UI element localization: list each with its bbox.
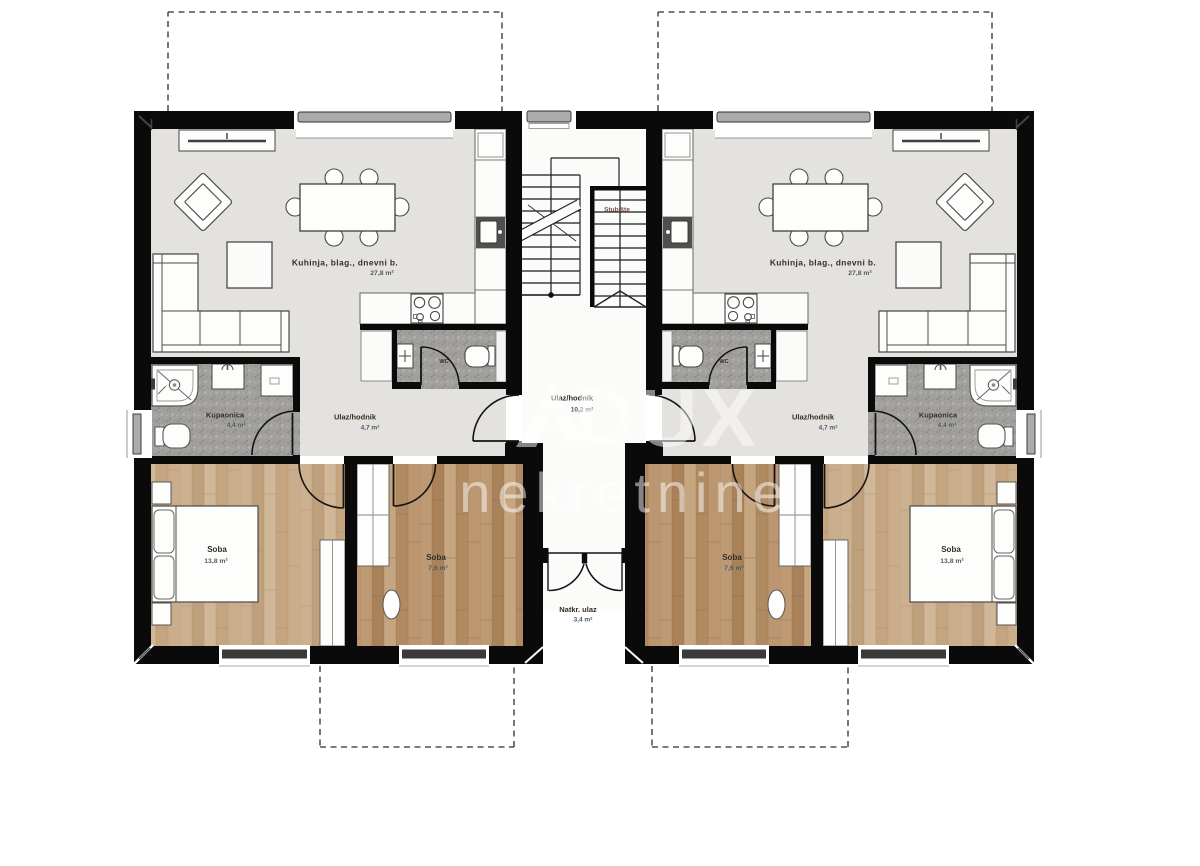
svg-text:Soba: Soba bbox=[426, 553, 446, 562]
svg-text:3,4 m²: 3,4 m² bbox=[574, 617, 594, 624]
svg-text:Ulaz/hodnik: Ulaz/hodnik bbox=[792, 413, 835, 422]
svg-text:7,6 m²: 7,6 m² bbox=[428, 565, 448, 572]
svg-text:27,8 m²: 27,8 m² bbox=[848, 270, 872, 277]
svg-text:27,8 m²: 27,8 m² bbox=[370, 270, 394, 277]
svg-text:Kuhinja, blag., dnevni b.: Kuhinja, blag., dnevni b. bbox=[770, 258, 876, 268]
svg-text:WC: WC bbox=[439, 359, 448, 365]
svg-text:DUX: DUX bbox=[575, 373, 760, 464]
svg-text:Kuhinja, blag., dnevni b.: Kuhinja, blag., dnevni b. bbox=[292, 258, 398, 268]
svg-text:Kupaonica: Kupaonica bbox=[919, 411, 958, 420]
svg-text:WC: WC bbox=[719, 359, 728, 365]
svg-text:Stubište: Stubište bbox=[604, 207, 630, 214]
svg-text:4,4 m²: 4,4 m² bbox=[938, 422, 958, 429]
svg-text:13,8 m²: 13,8 m² bbox=[204, 558, 228, 565]
svg-text:Ulaz/hodnik: Ulaz/hodnik bbox=[334, 413, 377, 422]
svg-text:Soba: Soba bbox=[207, 545, 227, 554]
svg-text:13,8 m²: 13,8 m² bbox=[940, 558, 964, 565]
svg-text:4,7 m²: 4,7 m² bbox=[361, 425, 381, 432]
svg-text:Soba: Soba bbox=[941, 545, 961, 554]
svg-text:Kupaonica: Kupaonica bbox=[206, 411, 245, 420]
svg-text:4,4 m²: 4,4 m² bbox=[227, 422, 247, 429]
svg-text:nekretnine: nekretnine bbox=[459, 461, 791, 524]
svg-text:7,6 m²: 7,6 m² bbox=[724, 565, 744, 572]
svg-text:Soba: Soba bbox=[722, 553, 742, 562]
svg-text:4,7 m²: 4,7 m² bbox=[819, 425, 839, 432]
svg-text:Natkr. ulaz: Natkr. ulaz bbox=[559, 605, 597, 614]
